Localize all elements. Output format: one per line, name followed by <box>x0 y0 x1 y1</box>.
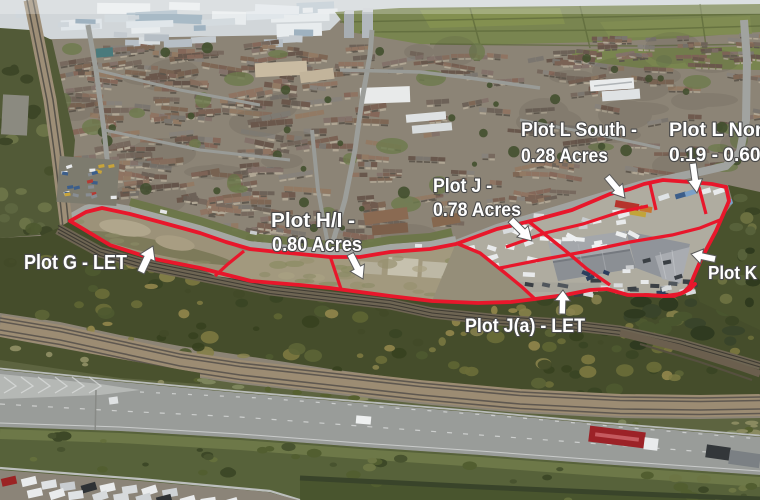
svg-text:Plot H/I -: Plot H/I - <box>271 210 355 232</box>
svg-text:Plot L South -: Plot L South - <box>521 120 637 141</box>
svg-text:Plot L North -: Plot L North - <box>669 120 760 141</box>
svg-text:Plot J(a) - LET: Plot J(a) - LET <box>465 316 585 337</box>
svg-text:Plot J -: Plot J - <box>433 176 492 197</box>
svg-text:Plot K: Plot K <box>708 263 757 283</box>
svg-text:0.28 Acres: 0.28 Acres <box>521 146 608 167</box>
svg-text:Plot G - LET: Plot G - LET <box>24 252 127 274</box>
svg-text:0.19 - 0.60 A: 0.19 - 0.60 A <box>669 145 760 166</box>
svg-text:0.78 Acres: 0.78 Acres <box>433 200 521 221</box>
svg-text:0.80 Acres: 0.80 Acres <box>272 234 362 256</box>
